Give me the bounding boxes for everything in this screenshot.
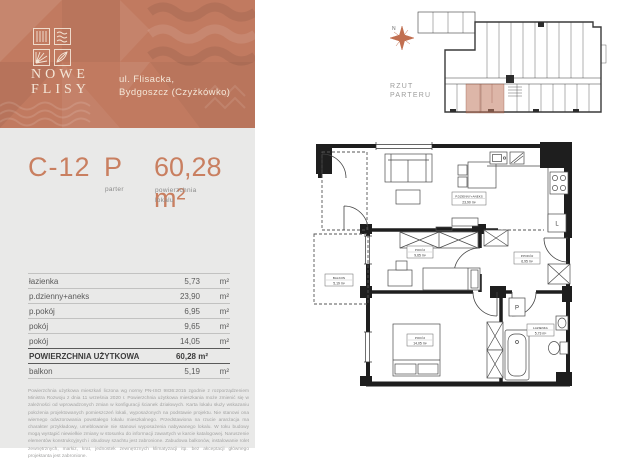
room-label-living: P.DZIENNY+ANEKS 23,90 m² (452, 192, 486, 205)
unit-area-caption: powierzchnia lokalu (155, 186, 197, 206)
table-row: łazienka 5,73 m² (28, 274, 230, 289)
svg-text:23,90 m²: 23,90 m² (462, 200, 476, 204)
project-address: ul. Flisacka, Bydgoszcz (Czyżkówko) (119, 74, 230, 100)
table-row: pokój 9,65 m² (28, 319, 230, 334)
table-row: p.pokój 6,95 m² (28, 304, 230, 319)
room-area-table: łazienka 5,73 m² p.dzienny+aneks 23,90 m… (28, 273, 230, 379)
highlighted-unit (466, 84, 504, 113)
table-row: pokój 14,05 m² (28, 334, 230, 349)
apartment-card: { "branding": { "name_line1": "NOWE", "n… (0, 0, 633, 448)
info-panel: NOWE FLISY ul. Flisacka, Bydgoszcz (Czyż… (0, 0, 255, 448)
svg-text:5,19 m²: 5,19 m² (333, 282, 345, 286)
room-label-bedroom-large: POKÓJ 14,05 m² (407, 334, 433, 346)
svg-text:9,65 m²: 9,65 m² (414, 254, 426, 258)
svg-text:5,73 m²: 5,73 m² (535, 332, 547, 336)
table-row: p.dzienny+aneks 23,90 m² (28, 289, 230, 304)
svg-text:N: N (392, 26, 396, 32)
unit-code: C-12 (28, 152, 91, 183)
table-total-row: POWIERZCHNIA UŻYTKOWA 60,28 m² (28, 348, 230, 364)
address-line2: Bydgoszcz (Czyżkówko) (119, 87, 230, 100)
svg-text:P.DZIENNY+ANEKS: P.DZIENNY+ANEKS (455, 194, 483, 198)
plan-walls (320, 146, 570, 384)
washer-label: P (515, 306, 519, 312)
building-site-plan: N (388, 5, 633, 130)
apartment-floor-plan: L P P.DZIENNY+ANEKS 23,90 m² POKÓJ 9,65 … (308, 128, 598, 403)
unit-floor-code: P (104, 152, 122, 183)
svg-text:6,95 m²: 6,95 m² (521, 260, 533, 264)
table-row-balcony: balkon 5,19 m² (28, 364, 230, 379)
brand-name-line1: NOWE (31, 68, 90, 83)
svg-text:P.POKÓJ: P.POKÓJ (521, 253, 534, 258)
svg-text:14,05 m²: 14,05 m² (413, 342, 427, 346)
room-label-balcony: BALKON 5,19 m² (325, 274, 353, 286)
svg-text:ŁAZIENKA: ŁAZIENKA (533, 326, 548, 330)
unit-floor-caption: parter (105, 186, 124, 193)
svg-text:BALKON: BALKON (333, 276, 345, 280)
brand-name-line2: FLISY (31, 83, 90, 98)
north-compass-icon: N (390, 26, 414, 50)
svg-text:POKÓJ: POKÓJ (415, 247, 426, 252)
room-label-bedroom-small: POKÓJ 9,65 m² (407, 246, 433, 258)
brand-name: NOWE FLISY (31, 68, 90, 98)
site-plan-caption: RZUT PARTERU (390, 82, 431, 101)
brand-banner: NOWE FLISY ul. Flisacka, Bydgoszcz (Czyż… (0, 0, 255, 128)
building-outline (418, 12, 606, 112)
svg-text:POKÓJ: POKÓJ (415, 335, 426, 340)
room-label-hall: P.POKÓJ 6,95 m² (514, 252, 540, 264)
room-label-bathroom: ŁAZIENKA 5,73 m² (527, 324, 554, 336)
legal-disclaimer: Powierzchnia użytkowa mieszkań liczona w… (28, 388, 249, 460)
address-line1: ul. Flisacka, (119, 74, 230, 87)
